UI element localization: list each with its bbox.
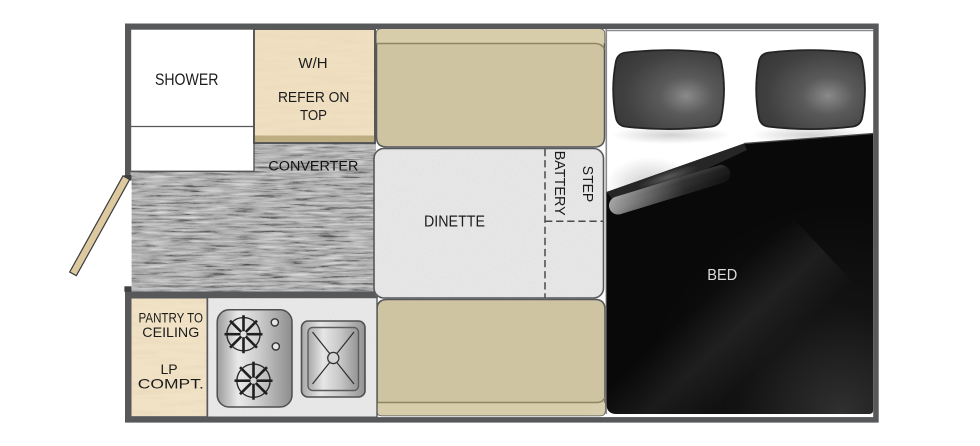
- svg-text:SHOWER: SHOWER: [155, 70, 219, 89]
- svg-text:CONVERTER: CONVERTER: [268, 159, 358, 174]
- svg-text:CEILING: CEILING: [142, 324, 199, 340]
- svg-text:DINETTE: DINETTE: [424, 214, 485, 231]
- svg-text:COMPT.: COMPT.: [138, 376, 204, 392]
- svg-text:W/H: W/H: [298, 55, 327, 72]
- svg-text:REFER ON: REFER ON: [278, 89, 350, 106]
- svg-text:BATTERY: BATTERY: [551, 151, 568, 216]
- svg-text:TOP: TOP: [300, 107, 327, 124]
- svg-text:STEP: STEP: [579, 166, 596, 203]
- svg-text:BED: BED: [707, 267, 737, 284]
